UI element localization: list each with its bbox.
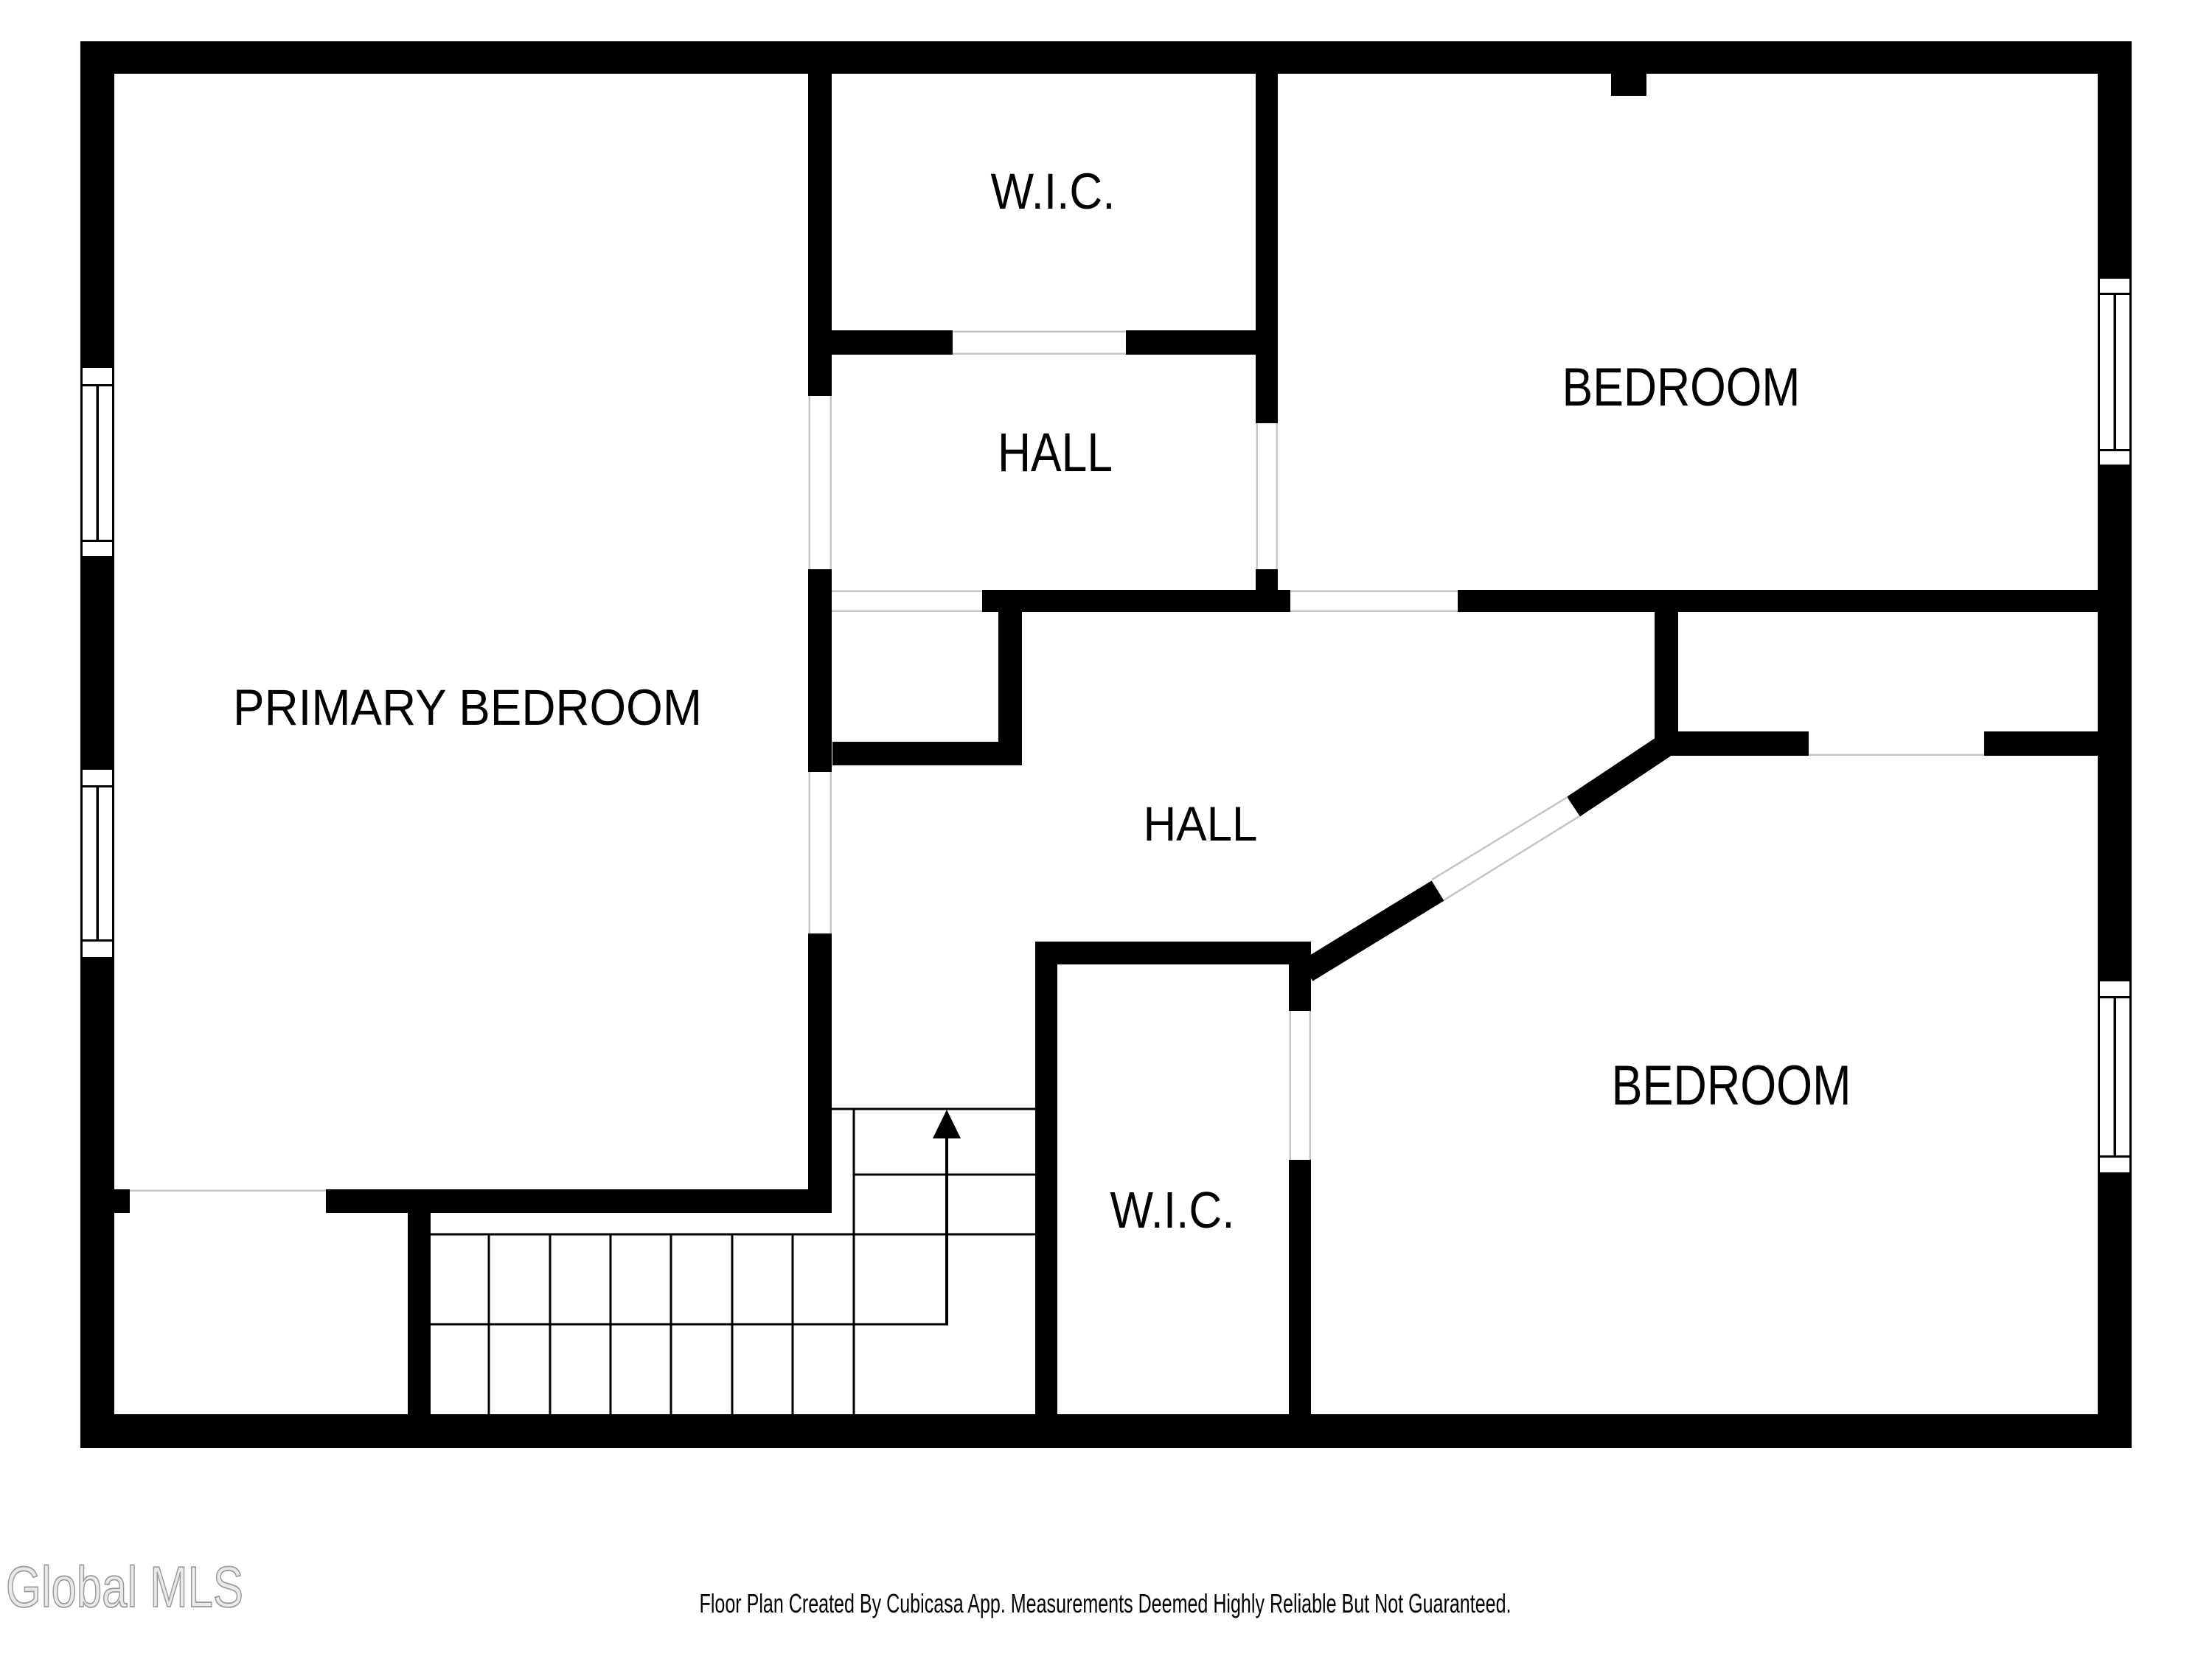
svg-text:BEDROOM: BEDROOM	[1612, 1054, 1851, 1117]
svg-text:PRIMARY BEDROOM: PRIMARY BEDROOM	[233, 679, 702, 736]
svg-text:W.I.C.: W.I.C.	[991, 163, 1116, 220]
svg-text:Floor Plan Created By Cubicasa: Floor Plan Created By Cubicasa App. Meas…	[700, 1588, 1512, 1618]
svg-text:HALL: HALL	[1144, 796, 1258, 851]
svg-text:W.I.C.: W.I.C.	[1110, 1181, 1235, 1239]
svg-text:BEDROOM: BEDROOM	[1562, 358, 1801, 417]
svg-text:Global MLS: Global MLS	[6, 1554, 243, 1619]
svg-text:HALL: HALL	[998, 422, 1113, 483]
